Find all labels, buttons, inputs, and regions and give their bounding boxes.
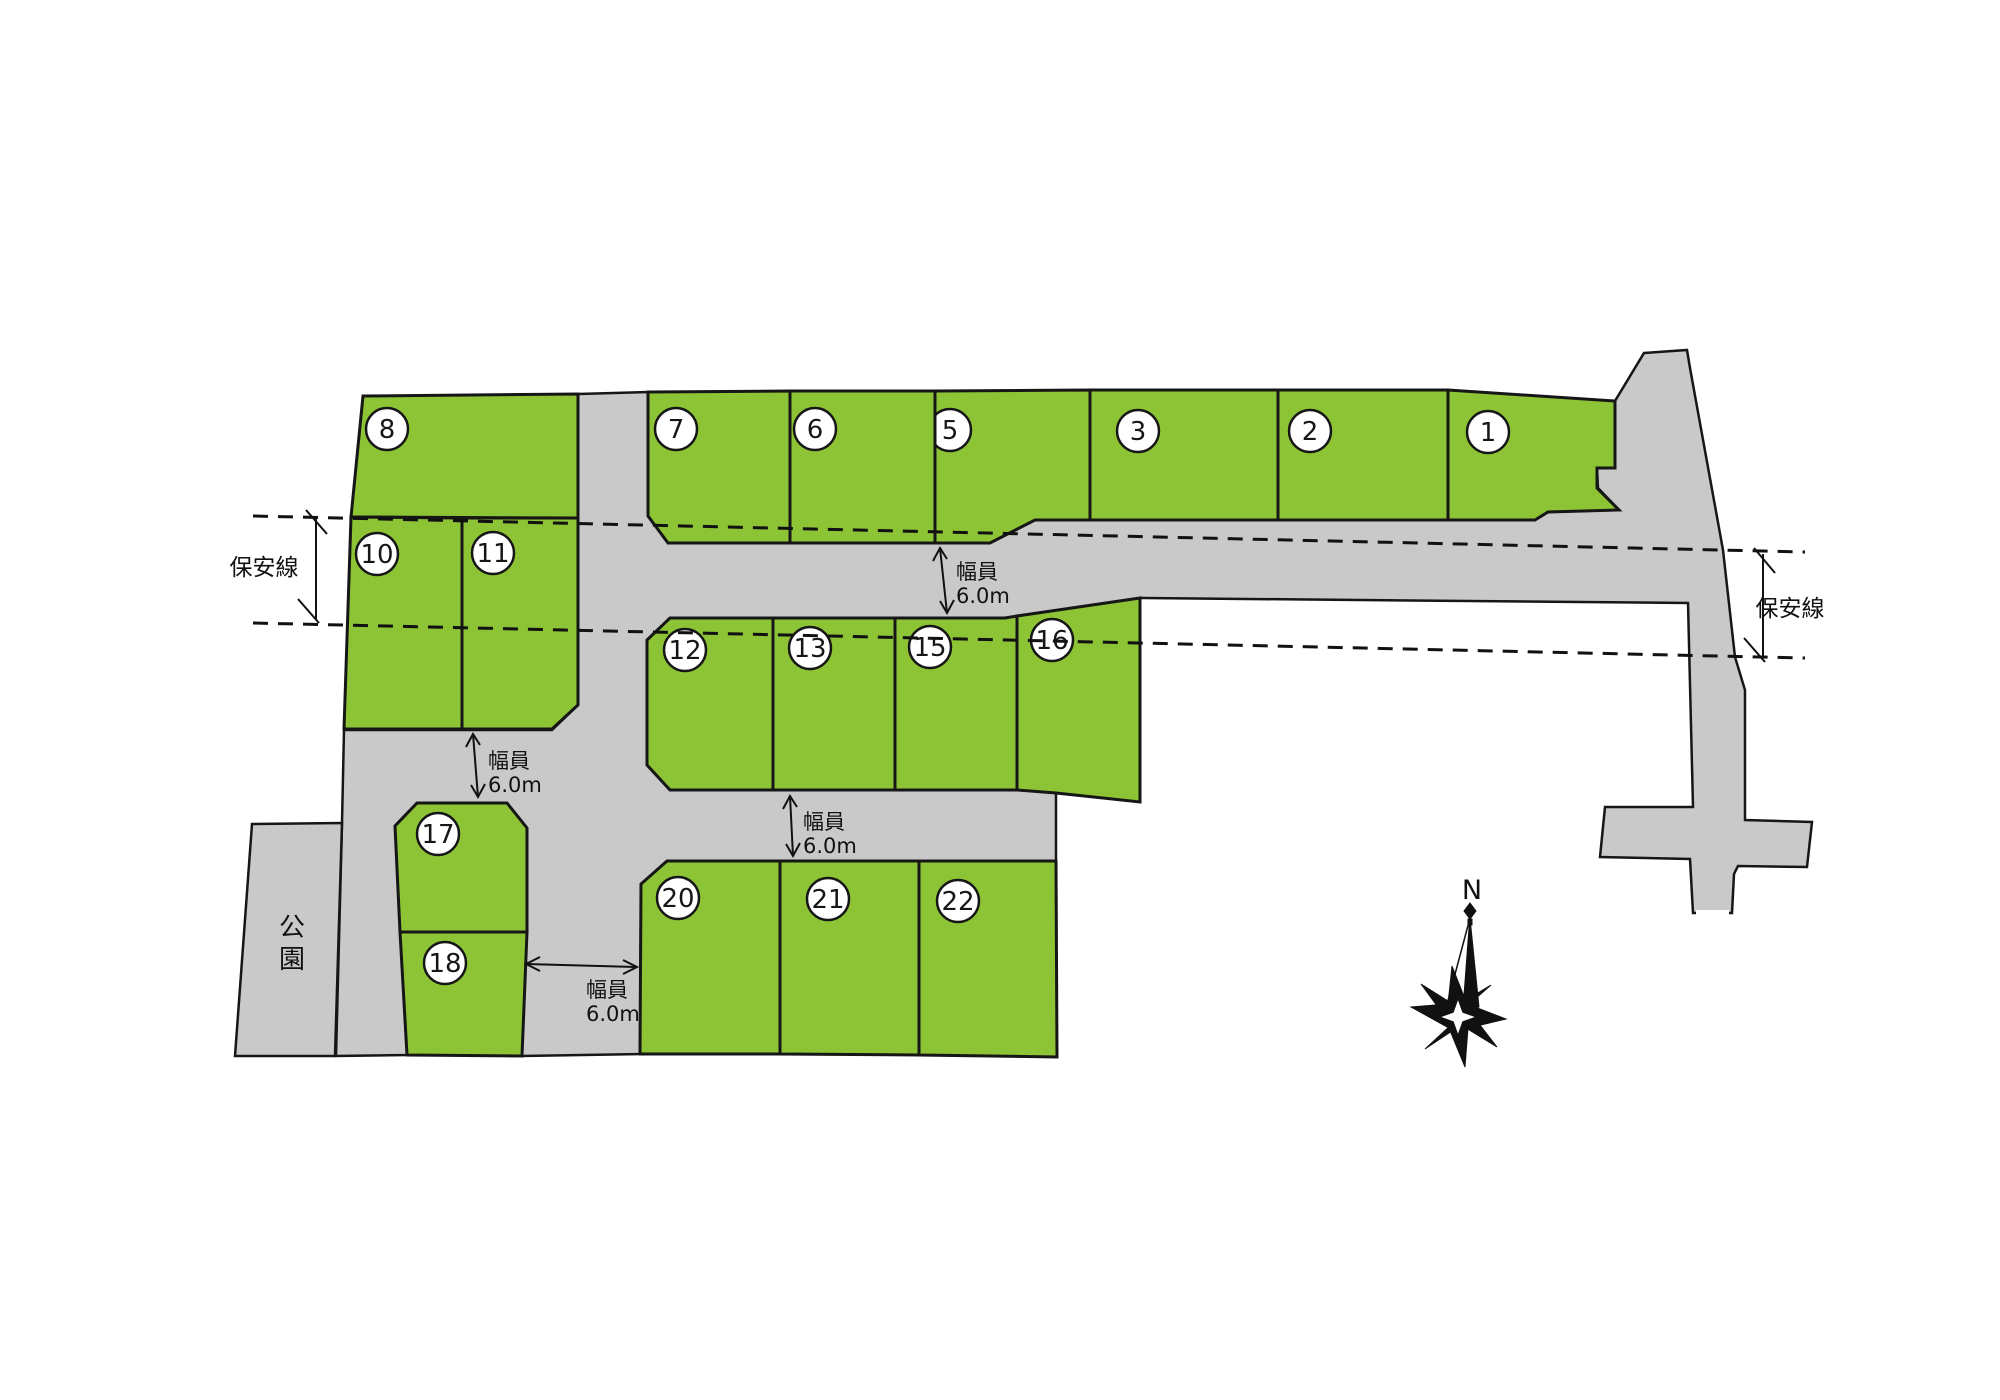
lot-17: 17 (395, 803, 527, 932)
lot-20: 20 (640, 861, 780, 1054)
park-label-char-2: 園 (279, 945, 305, 975)
lot-8: 8 (351, 394, 578, 518)
lot-12: 12 (647, 618, 773, 790)
lot-parcel-1[interactable] (1448, 390, 1619, 520)
park-area: 公 園 (235, 823, 342, 1056)
lot-2: 2 (1278, 390, 1448, 520)
width-label-southwest-line2: 6.0m (586, 1002, 640, 1026)
lot-13: 13 (773, 618, 895, 790)
lot-number-13: 13 (793, 634, 826, 664)
width-label-southwest-line1: 幅員 (586, 978, 628, 1002)
width-label-east-line1: 幅員 (956, 560, 998, 584)
lot-number-18: 18 (428, 949, 461, 979)
security-label-right-text: 保安線 (1756, 596, 1825, 622)
lot-parcel-21[interactable] (780, 861, 919, 1055)
lot-number-5: 5 (942, 416, 959, 446)
compass-rose: N (1411, 875, 1506, 1067)
lot-10: 10 (344, 517, 462, 729)
width-label-west-line2: 6.0m (488, 773, 542, 797)
lot-number-21: 21 (811, 885, 844, 915)
lot-7: 7 (648, 391, 790, 543)
width-label-east-line2: 6.0m (956, 584, 1010, 608)
width-label-west-line1: 幅員 (488, 749, 530, 773)
security-tick-right-bottom (1744, 638, 1765, 662)
lot-number-20: 20 (661, 884, 694, 914)
lot-number-22: 22 (941, 887, 974, 917)
compass-north-label: N (1462, 875, 1482, 906)
lot-number-3: 3 (1130, 417, 1147, 447)
lot-parcel-18[interactable] (400, 932, 527, 1056)
lot-number-10: 10 (360, 540, 393, 570)
lot-number-17: 17 (421, 820, 454, 850)
lot-number-2: 2 (1302, 417, 1319, 447)
lot-22: 22 (919, 861, 1057, 1057)
security-label-left-text: 保安線 (230, 555, 299, 581)
lot-parcel-2[interactable] (1278, 390, 1448, 520)
park-label-char-1: 公 (279, 913, 305, 943)
security-label-right: 保安線 (1744, 548, 1825, 662)
lot-18: 18 (400, 932, 527, 1056)
lot-number-8: 8 (379, 415, 396, 445)
lot-3: 3 (1090, 390, 1278, 520)
lot-number-11: 11 (476, 539, 509, 569)
lot-6: 6 (790, 391, 935, 543)
width-label-south-line1: 幅員 (803, 810, 845, 834)
lot-15: 15 (895, 616, 1017, 790)
security-label-left: 保安線 (230, 510, 328, 623)
lot-21: 21 (780, 861, 919, 1055)
lot-number-12: 12 (668, 636, 701, 666)
lot-number-1: 1 (1480, 418, 1497, 448)
lot-map: 公 園 12356781011121315161718202122 保安線 保安… (0, 0, 2000, 1400)
lot-number-7: 7 (668, 415, 685, 445)
lot-number-6: 6 (807, 415, 824, 445)
lot-11: 11 (462, 518, 578, 729)
lot-parcel-3[interactable] (1090, 390, 1278, 520)
lot-map-svg: 公 園 12356781011121315161718202122 保安線 保安… (0, 0, 2000, 1400)
lot-parcel-17[interactable] (395, 803, 527, 932)
width-label-south-line2: 6.0m (803, 834, 857, 858)
lot-16: 16 (1017, 598, 1140, 802)
lot-5: 5 (929, 390, 1090, 543)
lot-1: 1 (1448, 390, 1619, 520)
